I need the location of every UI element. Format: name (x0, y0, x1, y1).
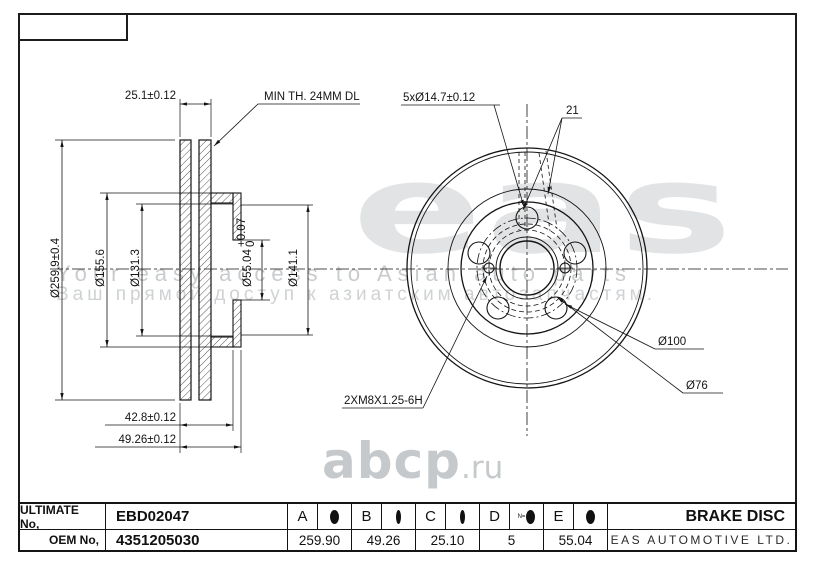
dim-bore-diameter: Ø55.04 (242, 249, 254, 287)
value-a: 259.90 (288, 530, 352, 550)
title-block: ULTIMATE No, EBD02047 A B C D N= E BRAKE… (18, 502, 797, 552)
dim-diameter-141: Ø141.1 (288, 249, 300, 287)
dim-bolt-holes: 5xØ14.7±0.12 (403, 92, 475, 104)
value-d: 5 (480, 530, 544, 550)
dim-diameter-131: Ø131.3 (130, 249, 142, 287)
value-e: 55.04 (544, 530, 608, 550)
front-view (342, 104, 723, 436)
technical-drawing: 25.1±0.12 MIN TH. 24MM DL Ø259.9±0.4 Ø15… (0, 0, 815, 566)
dim-bore-tol-lower: 0 (245, 241, 257, 247)
dim-min-thickness: MIN TH. 24MM DL (264, 91, 360, 103)
column-a-label: A (288, 504, 318, 530)
dim-thickness: 25.1±0.12 (125, 90, 176, 102)
dim-thread-spec: 2XM8X1.25-6H (344, 395, 423, 407)
value-b: 49.26 (352, 530, 416, 550)
column-a-icon-cell (318, 504, 352, 530)
ultimate-no-value: EBD02047 (106, 504, 288, 530)
oem-no-value: 4351205030 (106, 530, 288, 550)
holes-count-icon (526, 510, 535, 524)
outer-diameter-icon (330, 510, 339, 524)
bore-diameter-icon (586, 510, 595, 524)
thickness-icon (460, 510, 465, 524)
dim-bolt-circle: Ø100 (658, 336, 686, 348)
dim-hat-depth: 42.8±0.12 (125, 412, 176, 424)
brake-disc-drawing-page: { "watermark": { "logo_text": "eas", "ta… (0, 0, 815, 566)
column-e-label: E (544, 504, 574, 530)
column-c-icon-cell (446, 504, 480, 530)
ultimate-no-label: ULTIMATE No, (20, 504, 106, 530)
column-d-icon-cell: N= (510, 504, 544, 530)
dim-total-height: 49.26±0.12 (119, 434, 176, 446)
column-b-label: B (352, 504, 382, 530)
column-b-icon-cell (382, 504, 416, 530)
company-name: EAS AUTOMOTIVE LTD. (608, 530, 795, 550)
value-c: 25.10 (416, 530, 480, 550)
product-name: BRAKE DISC (608, 504, 795, 530)
oem-no-label: OEM No, (20, 530, 106, 550)
height-icon (396, 510, 401, 524)
column-c-label: C (416, 504, 446, 530)
column-d-label: D (480, 504, 510, 530)
dim-bore: Ø55.04 +0.07 0 (236, 218, 257, 287)
dim-outer-diameter: Ø259.9±0.4 (50, 237, 62, 298)
holes-count-icon-label: N= (518, 514, 526, 520)
column-e-icon-cell (574, 504, 608, 530)
dim-callout-21: 21 (566, 105, 579, 117)
dim-diameter-76: Ø76 (686, 380, 708, 392)
dim-diameter-155: Ø155.6 (95, 249, 107, 287)
